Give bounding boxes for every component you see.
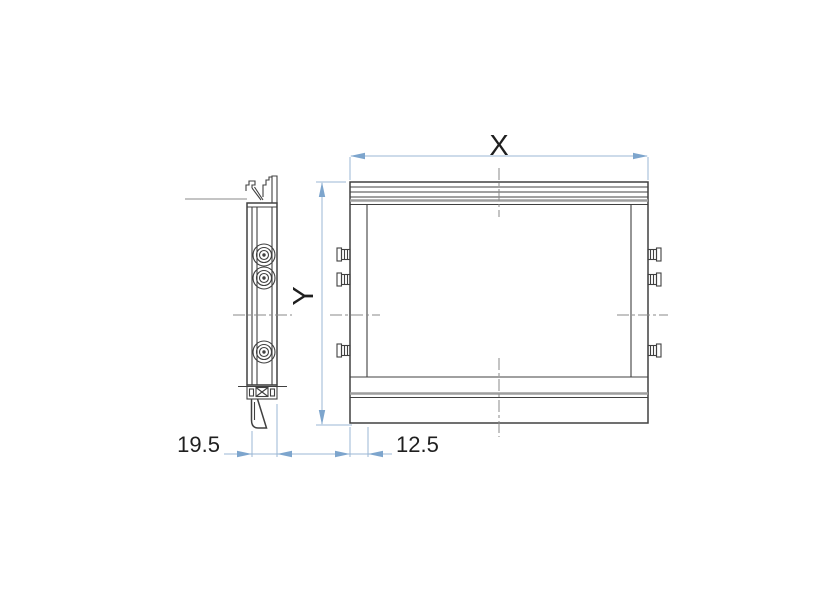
hook-profile (252, 399, 267, 428)
dim-border-label: 12.5 (396, 432, 439, 457)
fastener-circle-1 (253, 244, 275, 266)
spring-tab-left-2 (337, 273, 350, 286)
front-view (330, 168, 668, 437)
spring-tab-left-1 (337, 248, 350, 261)
dimension-annotations: X Y 19.5 12.5 (177, 130, 648, 457)
dim-bottom: 19.5 12.5 (177, 404, 439, 457)
drawing-sheet: X Y 19.5 12.5 (0, 0, 821, 616)
cad-drawing: X Y 19.5 12.5 (0, 0, 821, 616)
fastener-circle-2 (253, 267, 275, 289)
dim-y: Y (288, 182, 352, 425)
spring-tab-left-3 (337, 344, 350, 357)
dim-x-label: X (489, 130, 508, 162)
top-clip-left (246, 181, 263, 200)
fastener-circle-3 (253, 341, 275, 363)
spring-tab-right-2 (648, 273, 661, 286)
side-view (185, 176, 292, 428)
top-clip-right (263, 176, 277, 203)
dim-depth-label: 19.5 (177, 432, 220, 457)
spring-tab-right-3 (648, 344, 661, 357)
bottom-bracket (238, 385, 287, 399)
spring-tab-right-1 (648, 248, 661, 261)
profile-body (247, 203, 277, 385)
dim-y-label: Y (288, 286, 320, 305)
